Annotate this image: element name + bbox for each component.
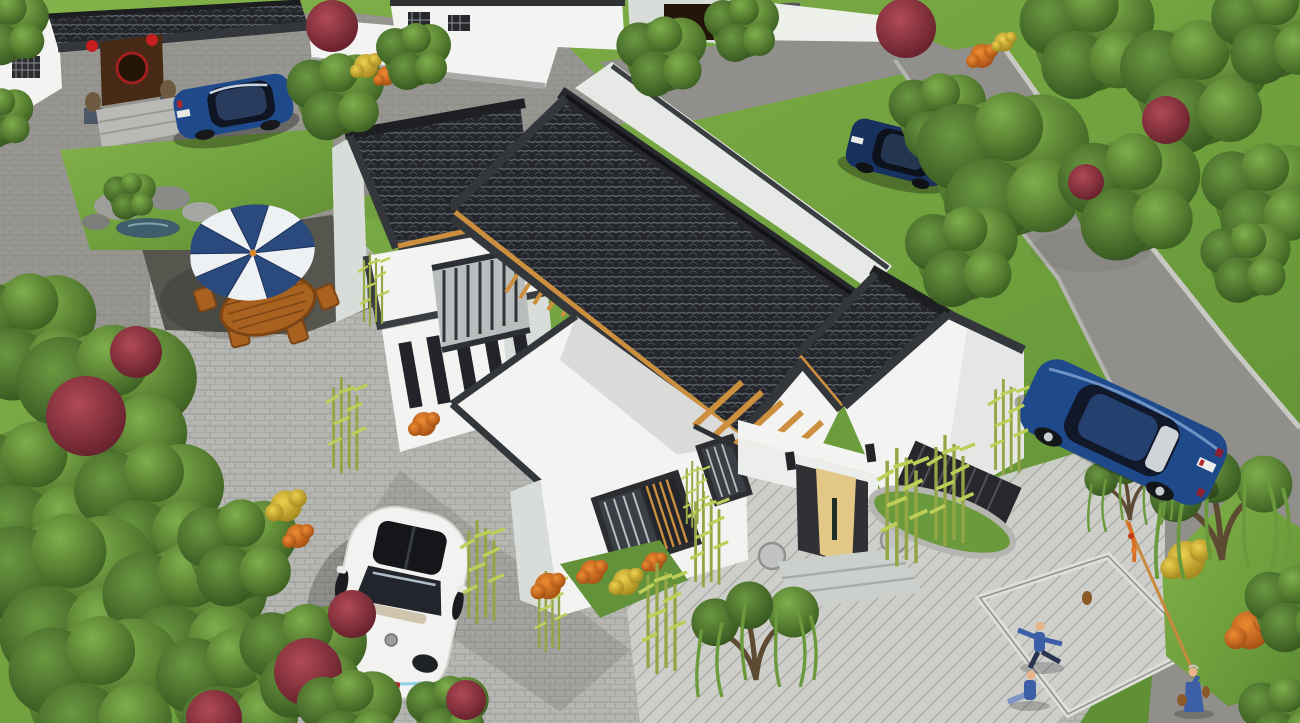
- scholar-rock: [82, 214, 110, 230]
- torso: [1024, 680, 1036, 700]
- stone-lion: [85, 92, 101, 112]
- far-house-roofline: [390, 0, 625, 6]
- red-shrub: [46, 376, 126, 456]
- red-shrub: [328, 590, 376, 638]
- figure-shadow: [1020, 662, 1064, 674]
- wooden-stool: [1082, 591, 1092, 605]
- head: [1189, 668, 1198, 677]
- head: [1036, 622, 1045, 631]
- torso: [1034, 632, 1045, 652]
- red-shrub: [1068, 164, 1104, 200]
- red-shrub: [110, 326, 162, 378]
- firecracker: [1131, 547, 1137, 553]
- scene-svg: [0, 0, 1300, 723]
- red-lantern: [86, 40, 98, 52]
- red-shrub: [1142, 96, 1190, 144]
- door-handle: [832, 498, 837, 540]
- red-tree: [876, 0, 936, 58]
- stone-lion: [160, 80, 176, 100]
- firecracker: [1128, 533, 1134, 539]
- red-lantern: [146, 34, 158, 46]
- pond: [116, 218, 180, 238]
- wooden-stool: [1202, 686, 1210, 698]
- red-shrub: [446, 680, 486, 720]
- satchel: [1177, 694, 1187, 706]
- head: [1027, 671, 1036, 680]
- figure-shadow: [1010, 701, 1050, 711]
- moon-window: [117, 53, 147, 83]
- red-tree: [306, 0, 358, 52]
- render-stage: [0, 0, 1300, 723]
